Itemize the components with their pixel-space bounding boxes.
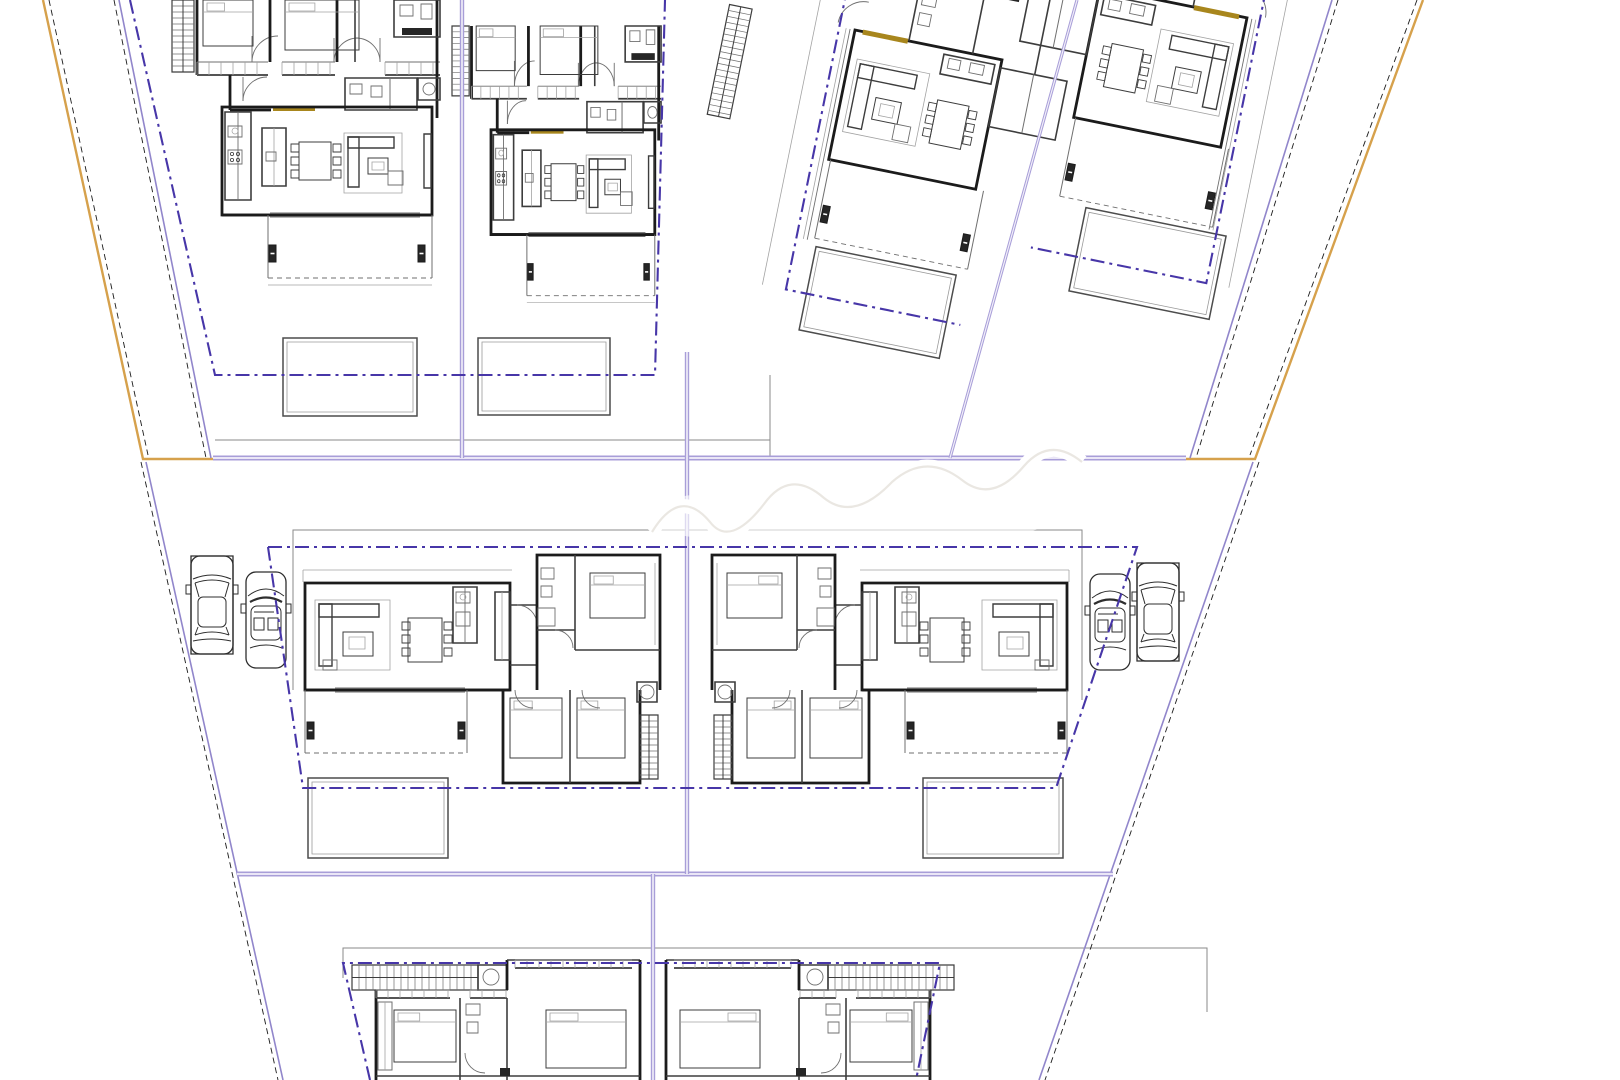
swimming-pools [283, 338, 1063, 858]
plot-line-bottom-top [343, 948, 1207, 1012]
villa-d-floor-plan [973, 0, 1297, 322]
boundary-right-inner-purple [1190, 0, 1332, 458]
setback-dashdot-lines [130, 0, 1137, 1080]
car-4-top-view [1132, 563, 1184, 661]
setback-plots-a-b [130, 0, 665, 375]
house-bottom-right-floor-plan [666, 960, 954, 1080]
pool-villa-b [478, 338, 610, 415]
car-2-top-view [241, 572, 291, 668]
pool-villa-a [283, 338, 417, 416]
house-bottom-left-floor-plan [352, 960, 640, 1080]
boundary-right-lower-purple [1039, 462, 1253, 1080]
house-middle-right-floor-plan [712, 555, 1069, 783]
boundary-right-dashed [1250, 0, 1417, 455]
pool-house-middle-right [923, 778, 1063, 858]
divider-plot-c-d [950, 0, 1077, 458]
blueprint-page [0, 0, 1620, 1080]
villa-b-floor-plan [452, 26, 661, 302]
car-3-top-view [1085, 574, 1135, 670]
pool-house-middle-left [308, 778, 448, 858]
boundary-right-lower-dashed [1045, 462, 1259, 1080]
boundary-left-lower-dashed [141, 462, 278, 1080]
boundary-right-orange [1186, 0, 1423, 459]
watermark [630, 450, 1082, 546]
car-1-top-view [186, 556, 238, 654]
plot-thin-lines [215, 375, 1207, 1012]
house-middle-left-floor-plan [303, 555, 660, 783]
villa-a-floor-plan [172, 0, 440, 285]
site-plan-drawing [0, 0, 1620, 1080]
boundary-left-lower-purple [146, 462, 283, 1080]
